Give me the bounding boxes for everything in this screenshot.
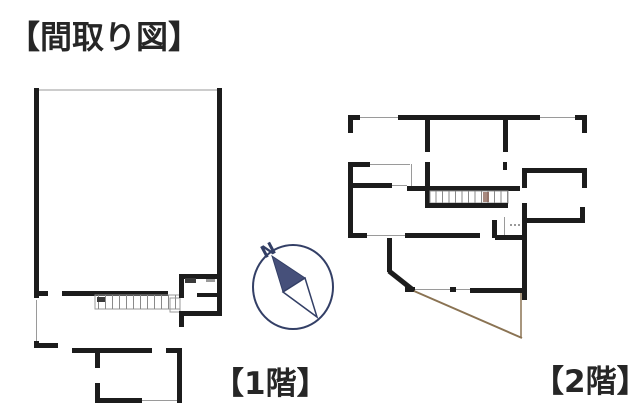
floor1-lower-left-wall-upper: [95, 348, 100, 368]
floor2-top-partition-1: [425, 119, 430, 152]
floor2-roomB-bottom-wall: [527, 218, 585, 223]
floor1-entry-small-mark: [206, 279, 215, 282]
floor2-closet-dot-3: [518, 224, 520, 226]
floor2-bottom-row-main: [405, 233, 480, 238]
floor1-lower-bottom-wall: [95, 398, 142, 403]
floor2-lower-bottom-wall: [470, 288, 525, 293]
floor2-stairs-left-wall: [425, 162, 430, 206]
floor1-plan: [34, 88, 222, 403]
floor2-center-wall-lower: [522, 203, 527, 300]
compass-icon: N: [253, 239, 333, 329]
floor1-stairs-treads: [95, 295, 180, 309]
floor1-right-wall: [217, 88, 222, 315]
floor1-entry-fixture-mark: [185, 278, 196, 283]
floor2-bottom-row-left: [348, 233, 367, 238]
floor2-bottom-row-stub: [492, 220, 497, 238]
floor2-stairs-bottom-wall: [425, 203, 508, 208]
floor1-stairs-start-mark: [97, 297, 105, 302]
floor2-roomA-top-wall: [524, 168, 587, 173]
floor1-entry-divider-wall: [197, 293, 222, 297]
floor1-bottom-wall-left: [34, 291, 48, 296]
floor1-label: 【1階】: [213, 366, 328, 402]
floor1-left-corner-h: [34, 343, 58, 348]
floor2-plan: [348, 115, 587, 338]
floor2-mid-wall-stub: [503, 162, 507, 170]
floor1-lower-right-wall: [177, 348, 182, 403]
floorplan-drawing: 【間取り図】: [0, 0, 640, 418]
floor2-roomA-right-wall: [582, 168, 587, 188]
floor1-mid-wall: [72, 348, 152, 353]
floor2-closet-dot-1: [510, 224, 512, 226]
floor1-left-wall: [34, 88, 39, 298]
floor2-lower-nub-2: [450, 287, 456, 292]
floor2-tl-corner-v: [348, 115, 353, 133]
floor2-closet-bottom-wall: [495, 235, 527, 240]
floor2-row2-wall-left: [349, 183, 392, 188]
floor2-stairs-end-mark: [483, 192, 489, 202]
page-title: 【間取り図】: [8, 18, 200, 56]
floor2-closet-dot-2: [514, 224, 516, 226]
floor2-top-partition-2: [503, 119, 508, 152]
floor2-roof-diagonal-line: [414, 291, 522, 338]
floor2-stairs-treads: [430, 191, 508, 203]
floor2-left-wall: [348, 162, 353, 238]
floor2-lower-nub-1: [405, 287, 415, 292]
floor2-lower-left-wall: [387, 238, 392, 272]
floor2-label: 【2階】: [533, 364, 640, 400]
floor1-entry-wall-stub: [179, 316, 184, 327]
floorplan-page: 【間取り図】: [0, 0, 640, 418]
floor2-top-wall: [398, 115, 540, 120]
floor1-entry-left-wall: [179, 274, 184, 298]
floor2-tr-corner-v: [582, 115, 587, 133]
floor2-stairs-top-wall: [407, 186, 520, 191]
floor1-entry-bottom-wall: [179, 311, 222, 316]
